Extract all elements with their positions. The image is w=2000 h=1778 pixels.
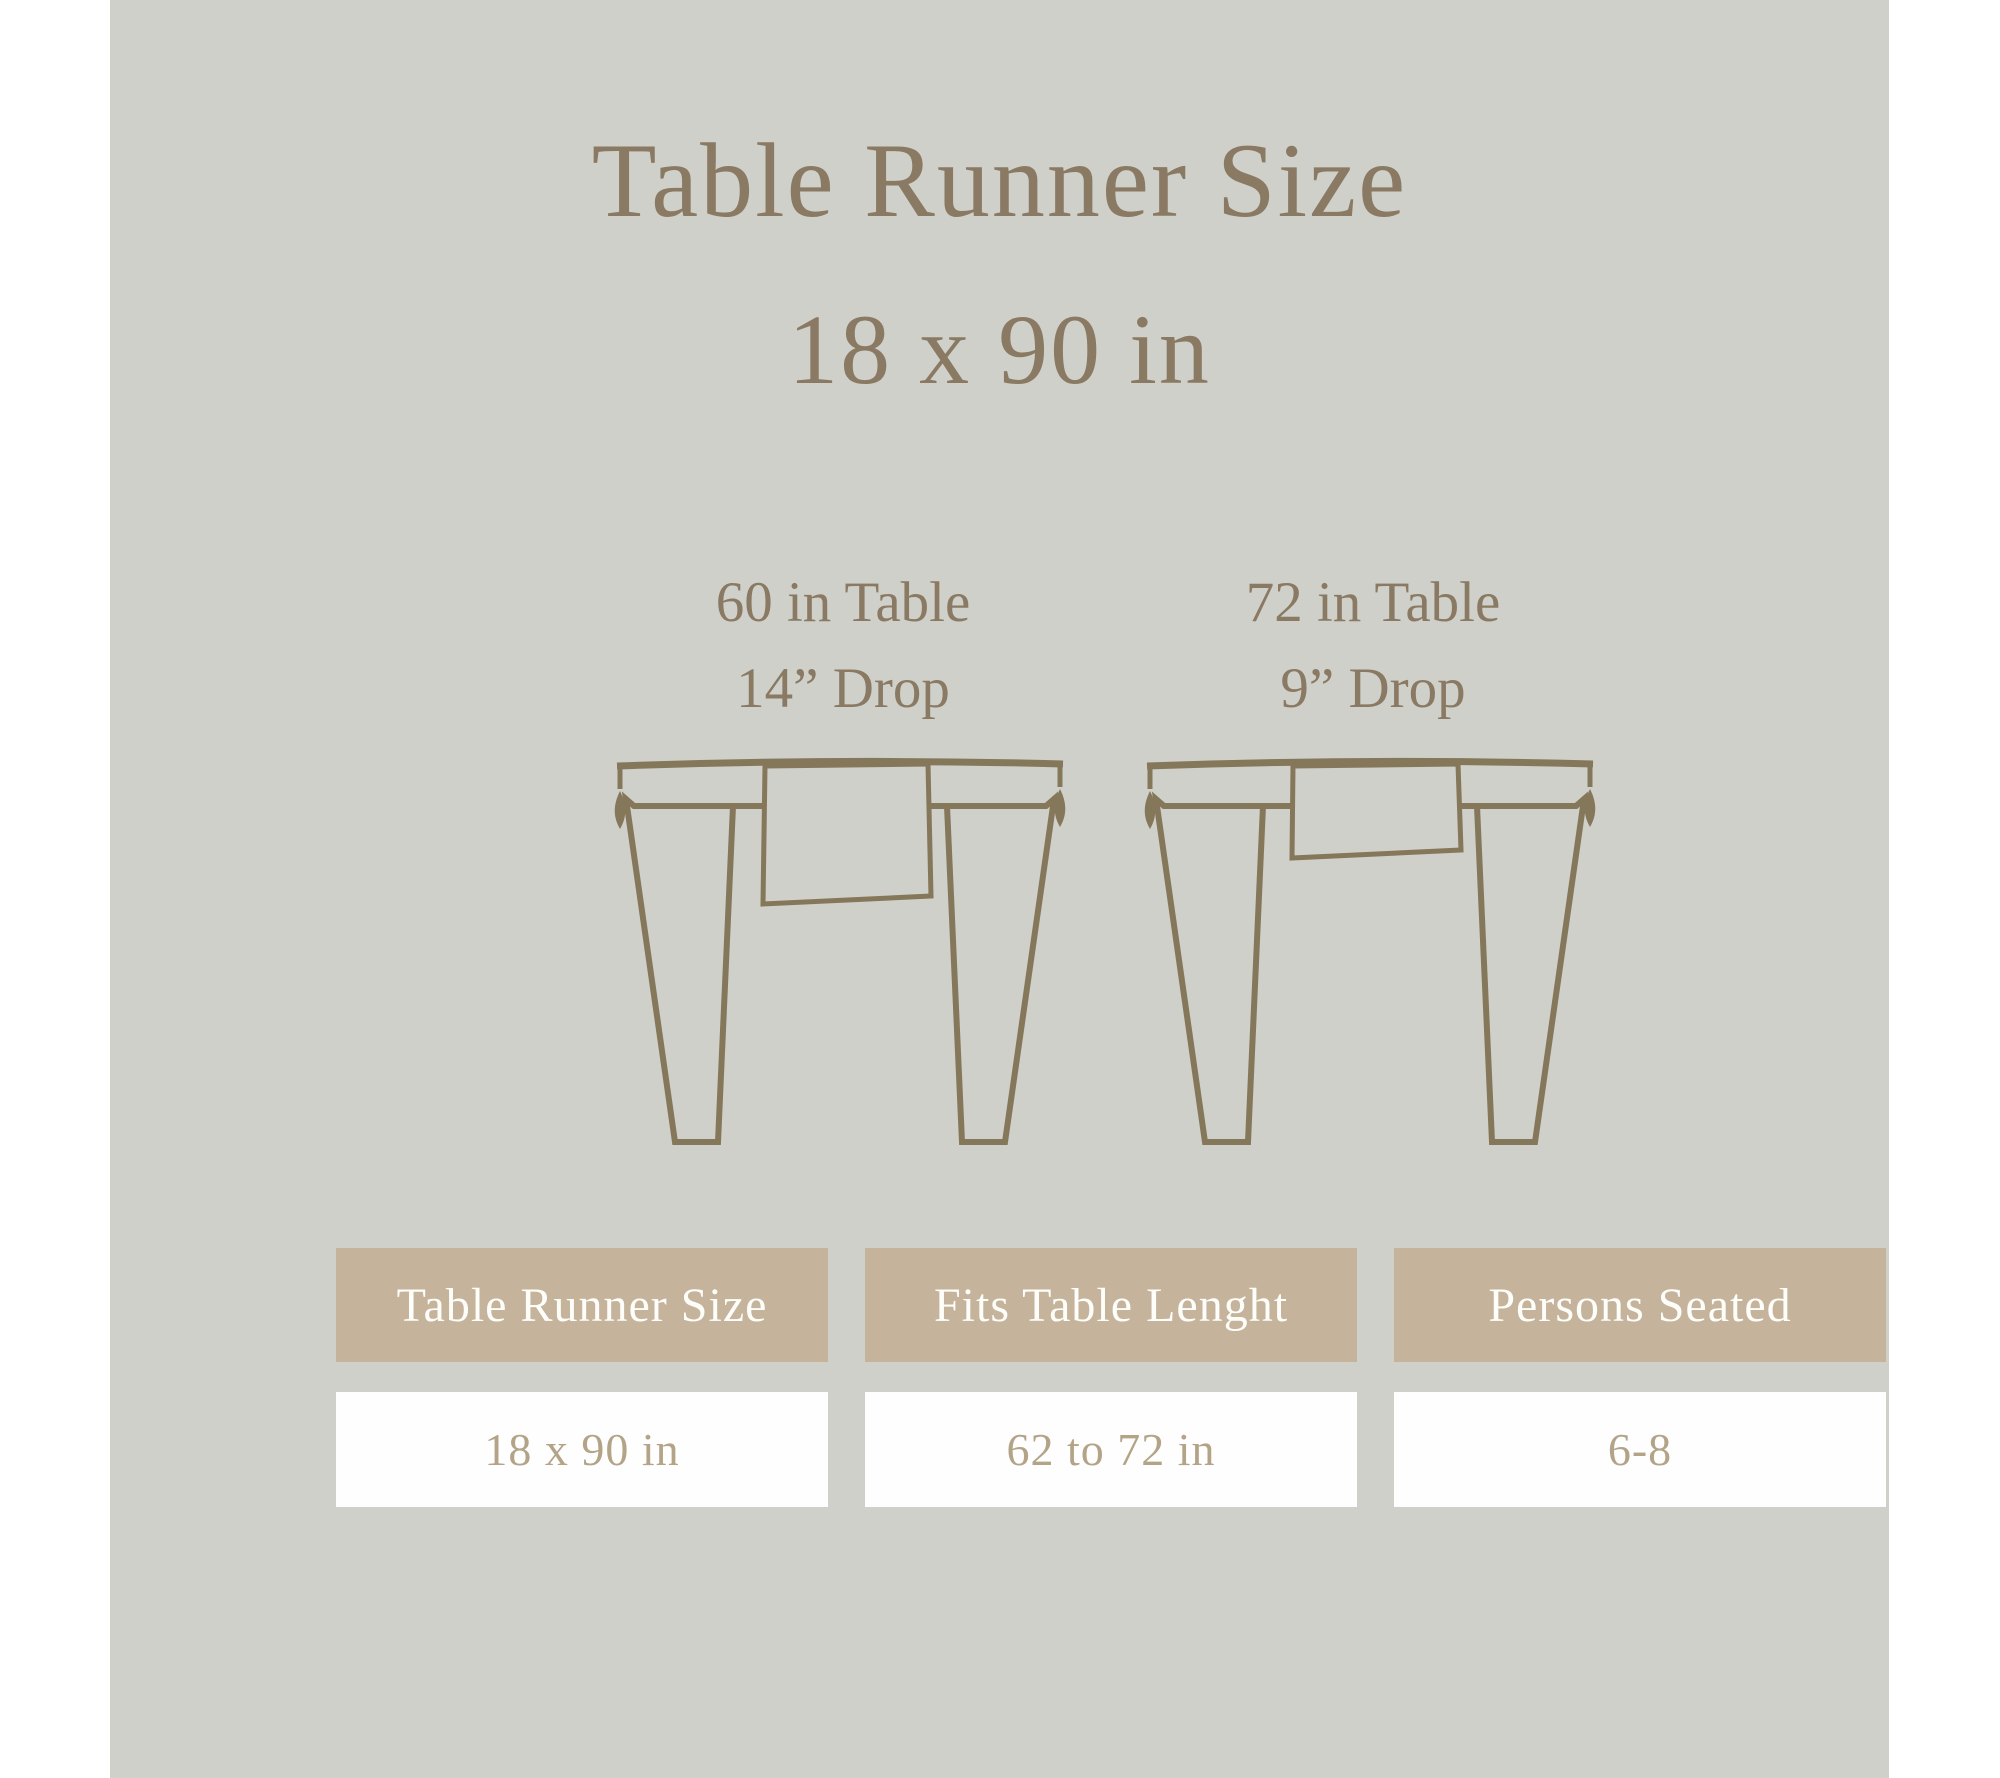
- page-title: Table Runner Size: [110, 128, 1889, 234]
- runner-drape-icon: [1292, 764, 1461, 858]
- table-length-label: 60 in Table: [583, 560, 1103, 646]
- header-cell-persons-seated: Persons Seated: [1394, 1248, 1886, 1362]
- infographic-canvas: Table Runner Size 18 x 90 in 60 in Table…: [0, 0, 2000, 1778]
- table-illustration-72in: [1140, 755, 1600, 1155]
- size-chart-header-row: Table Runner Size Fits Table Lenght Pers…: [336, 1248, 1886, 1362]
- diagram-label-60in: 60 in Table 14” Drop: [583, 560, 1103, 732]
- header-cell-runner-size: Table Runner Size: [336, 1248, 828, 1362]
- value-cell-persons-seated: 6-8: [1394, 1392, 1886, 1507]
- value-cell-runner-size: 18 x 90 in: [336, 1392, 828, 1507]
- table-length-label: 72 in Table: [1113, 560, 1633, 646]
- value-cell-fits-length: 62 to 72 in: [865, 1392, 1357, 1507]
- table-leg-left-icon: [1156, 799, 1263, 1142]
- runner-size-subtitle: 18 x 90 in: [110, 300, 1889, 400]
- header-cell-fits-length: Fits Table Lenght: [865, 1248, 1357, 1362]
- drop-length-label: 14” Drop: [583, 646, 1103, 732]
- table-leg-right-icon: [947, 799, 1054, 1142]
- diagram-label-72in: 72 in Table 9” Drop: [1113, 560, 1633, 732]
- table-leg-left-icon: [626, 799, 733, 1142]
- table-leg-right-icon: [1477, 799, 1584, 1142]
- runner-drape-icon: [763, 764, 931, 904]
- gray-panel: Table Runner Size 18 x 90 in 60 in Table…: [110, 0, 1889, 1778]
- table-illustration-60in: [610, 755, 1070, 1155]
- size-chart-value-row: 18 x 90 in 62 to 72 in 6-8: [336, 1392, 1886, 1507]
- drop-length-label: 9” Drop: [1113, 646, 1633, 732]
